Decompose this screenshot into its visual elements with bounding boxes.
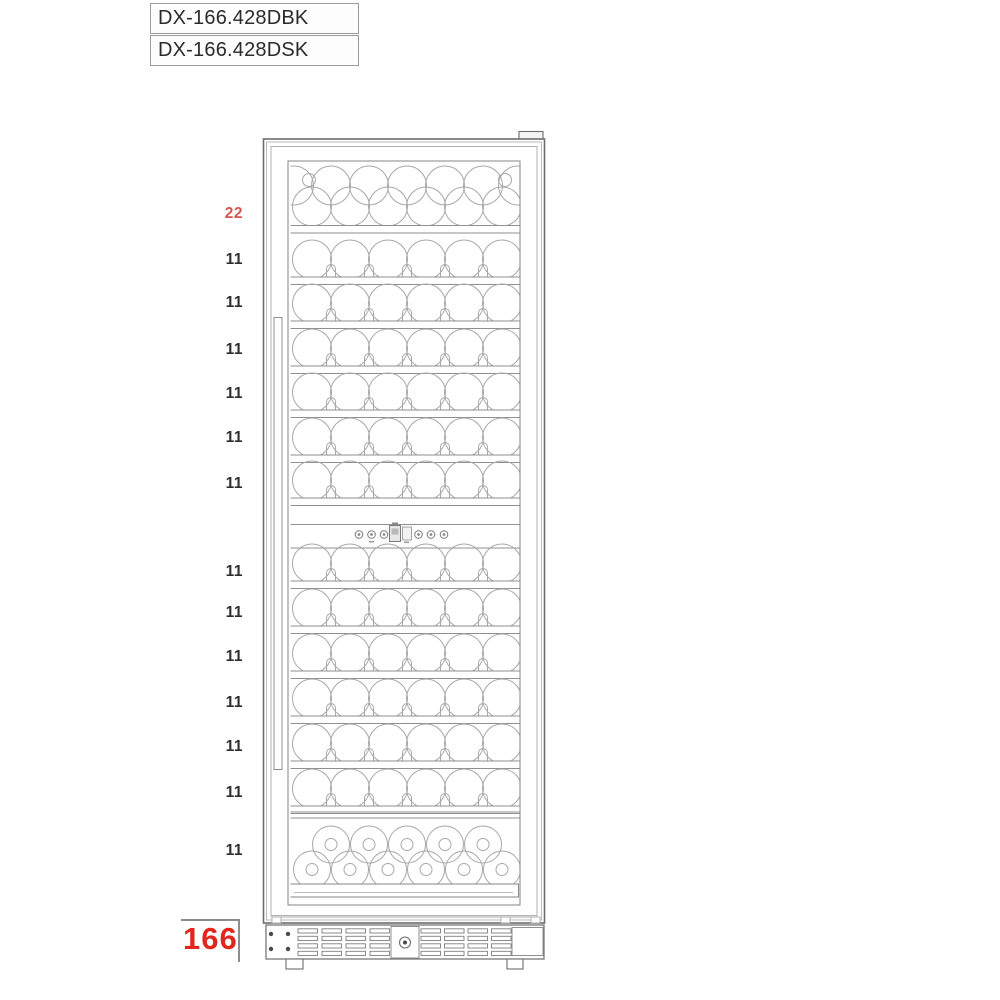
wine-cooler-diagram <box>0 0 1000 1000</box>
diagram-canvas: DX-166.428DBK DX-166.428DSK 221111111111… <box>0 0 1000 1000</box>
